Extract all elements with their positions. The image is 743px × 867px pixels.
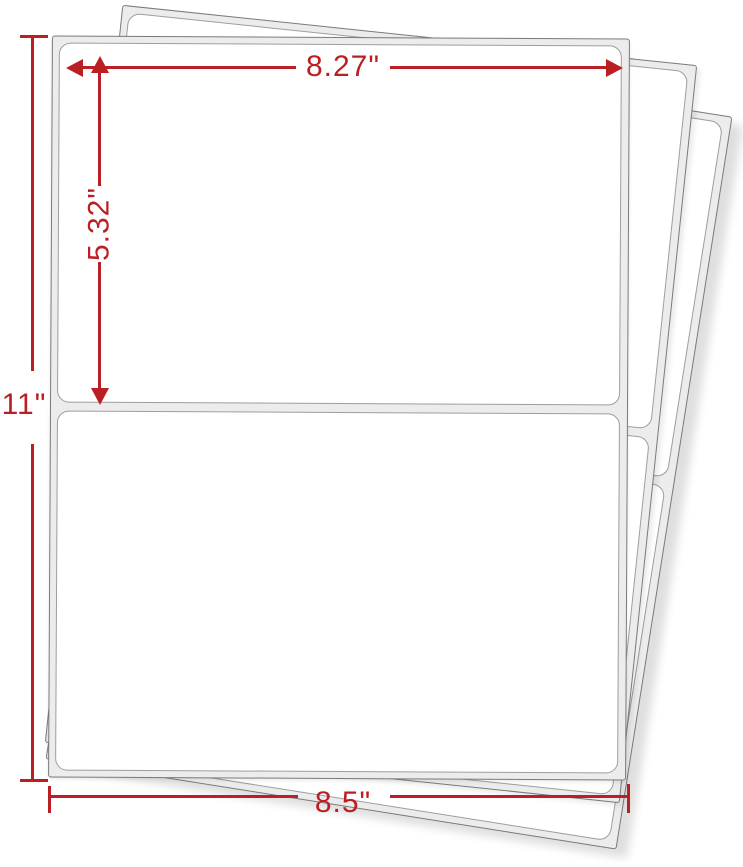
dimension-line (50, 795, 298, 798)
dimension-line (390, 66, 607, 69)
label-sheet-front (48, 35, 630, 780)
dimension-line (31, 37, 34, 371)
blank-label-bottom (55, 411, 620, 774)
product-diagram: 8.27" 5.32" 11" 8.5" (0, 0, 743, 867)
end-tick (627, 784, 630, 813)
arrowhead-right-icon (606, 59, 632, 77)
dimension-line (98, 262, 101, 388)
label-height-value: 5.32" (83, 187, 116, 261)
blank-label-top (57, 43, 622, 406)
end-tick (48, 786, 51, 813)
arrowhead-down-icon (91, 388, 109, 414)
dimension-line (390, 795, 630, 798)
dimension-line (98, 62, 101, 186)
dimension-line (31, 444, 34, 782)
label-width-value: 8.27" (294, 50, 392, 83)
end-tick (20, 779, 48, 782)
end-tick (20, 35, 48, 38)
sheet-width-value: 8.5" (296, 786, 390, 819)
sheet-height-value: 11" (1, 388, 47, 421)
